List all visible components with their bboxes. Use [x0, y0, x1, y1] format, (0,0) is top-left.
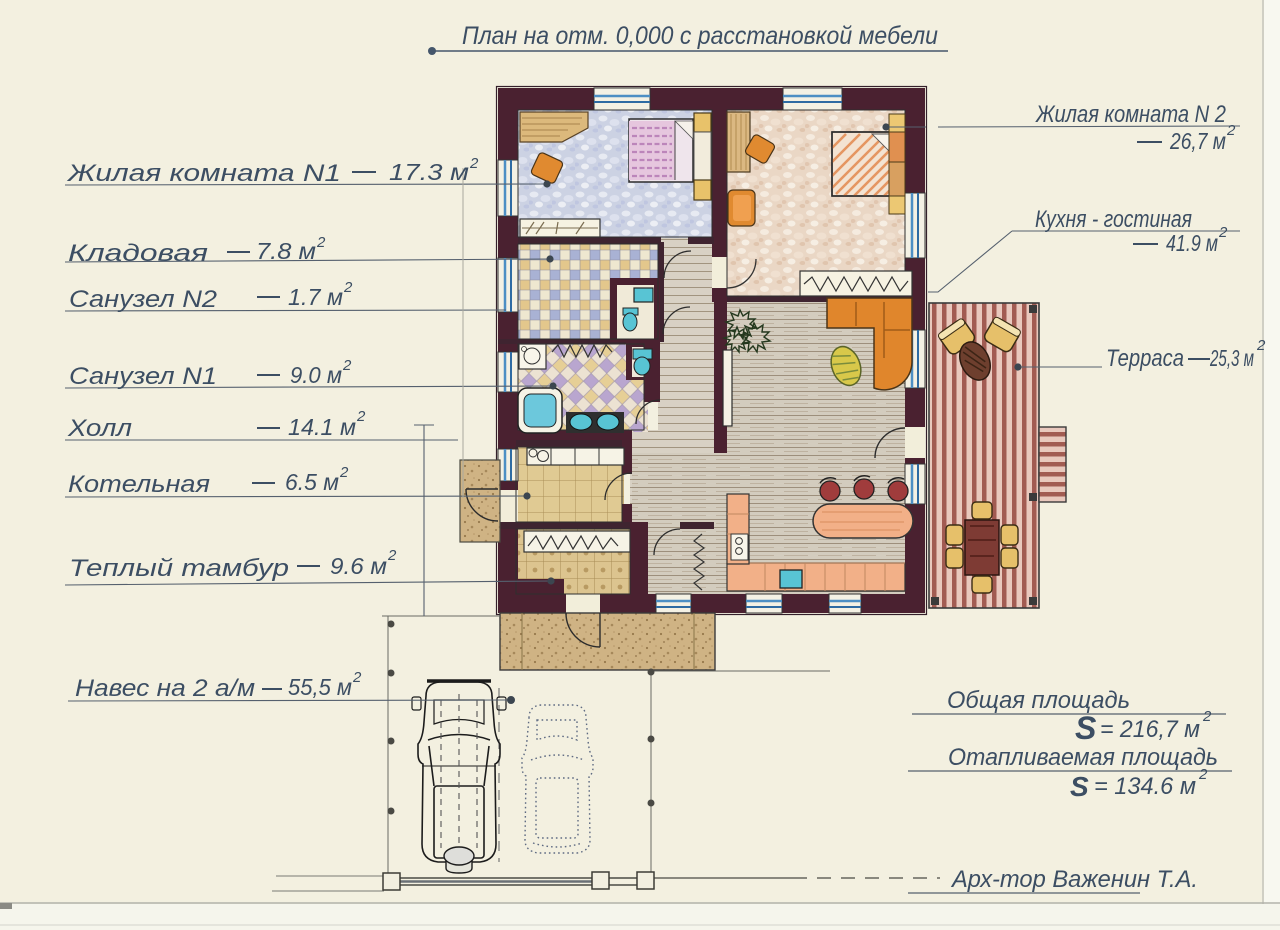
svg-text:25,3 м: 25,3 м [1209, 345, 1254, 371]
svg-text:17.3 м: 17.3 м [389, 159, 469, 185]
svg-text:2: 2 [1256, 337, 1266, 354]
svg-text:2: 2 [1226, 122, 1236, 139]
svg-text:= 134.6 м: = 134.6 м [1094, 773, 1196, 800]
svg-text:7.8 м: 7.8 м [256, 238, 316, 264]
svg-text:2: 2 [339, 464, 349, 481]
svg-text:Теплый тамбур: Теплый тамбур [69, 555, 289, 582]
svg-text:9.0 м: 9.0 м [290, 362, 342, 388]
svg-text:Холл: Холл [67, 415, 133, 442]
svg-text:S: S [1070, 771, 1089, 802]
svg-text:Жилая комната N1: Жилая комната N1 [67, 160, 341, 187]
svg-text:9.6 м: 9.6 м [330, 553, 387, 579]
svg-text:План на отм. 0,000 с расстанов: План на отм. 0,000 с расстановкой мебели [462, 22, 938, 50]
svg-text:2: 2 [342, 357, 352, 374]
svg-text:Котельная: Котельная [68, 471, 210, 498]
svg-text:26,7 м: 26,7 м [1169, 128, 1226, 154]
svg-text:Санузел N2: Санузел N2 [69, 286, 217, 313]
svg-text:Санузел N1: Санузел N1 [69, 363, 217, 390]
svg-text:2: 2 [352, 669, 362, 686]
svg-text:= 216,7 м: = 216,7 м [1100, 716, 1200, 743]
svg-text:55,5 м: 55,5 м [288, 674, 352, 700]
svg-text:S: S [1075, 710, 1097, 746]
svg-text:14.1 м: 14.1 м [288, 414, 356, 440]
svg-text:2: 2 [469, 155, 479, 172]
svg-text:2: 2 [1202, 708, 1212, 725]
svg-text:2: 2 [343, 279, 353, 296]
svg-text:2: 2 [356, 408, 366, 425]
svg-text:1.7 м: 1.7 м [288, 284, 343, 310]
svg-text:Кладовая: Кладовая [68, 240, 208, 267]
svg-text:Жилая комната N 2: Жилая комната N 2 [1035, 101, 1226, 128]
svg-text:Общая площадь: Общая площадь [947, 687, 1130, 714]
svg-text:Терраса: Терраса [1106, 345, 1184, 372]
svg-text:2: 2 [1198, 766, 1208, 783]
svg-text:41.9 м: 41.9 м [1166, 230, 1218, 256]
svg-text:2: 2 [1218, 224, 1228, 241]
svg-text:Навес на 2 а/м: Навес на 2 а/м [75, 675, 255, 702]
svg-text:2: 2 [387, 547, 397, 564]
svg-text:Арх-тор Важенин Т.А.: Арх-тор Важенин Т.А. [950, 866, 1198, 893]
svg-text:Отапливаемая площадь: Отапливаемая площадь [948, 744, 1218, 771]
svg-text:6.5 м: 6.5 м [285, 469, 339, 495]
svg-text:2: 2 [316, 234, 326, 251]
svg-text:Кухня - гостиная: Кухня - гостиная [1035, 206, 1192, 233]
